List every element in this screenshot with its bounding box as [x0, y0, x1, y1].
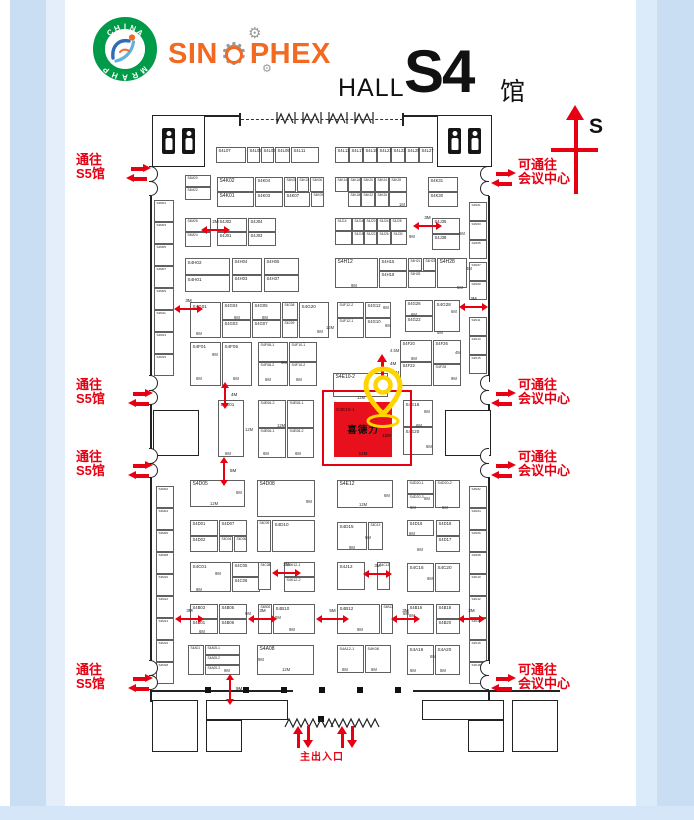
gear-icon: ⚙ [262, 64, 272, 75]
pillar [205, 687, 211, 693]
aisle-arrow-icon: 3M [413, 220, 442, 232]
dimension-label: 4M [455, 350, 461, 355]
booth: S4J04 [248, 218, 276, 232]
booth: S4L25 [405, 147, 419, 163]
booth: S4M22 [185, 187, 211, 200]
booth [335, 231, 352, 245]
booth: S4J26 [377, 231, 391, 245]
booth: S4D17 [436, 536, 460, 552]
dimension-label: 4.5M [390, 348, 399, 353]
booth: S4G28 [434, 300, 460, 332]
booth: S4D01 [190, 520, 218, 536]
booth: S4G26 [405, 300, 433, 316]
booth: S4D06 [234, 536, 247, 552]
dimension-label: 6M [295, 451, 301, 456]
dimension-label: 9M [306, 499, 312, 504]
booth: S4M01 [154, 200, 174, 222]
dimension-label: 6M [410, 505, 416, 510]
booth: S4N05 [469, 240, 487, 259]
booth: S4D02 [190, 536, 218, 552]
booth: S4G08 [282, 302, 298, 320]
aisle-arrow-icon: 2M [201, 224, 230, 236]
dimension-label: 12M [277, 423, 285, 428]
booth: S4J30 [391, 231, 407, 245]
dimension-label: 12M [245, 427, 253, 432]
aisle-arrow-icon: 3M [175, 613, 204, 625]
corridor-label-right: 可通往会议中心 [518, 663, 570, 692]
wall [203, 115, 240, 117]
booth: S4N08 [469, 552, 487, 574]
booth: S4F10-2 [289, 362, 317, 386]
dimension-label: 5M [457, 285, 463, 290]
booth: S4H05 [264, 258, 299, 275]
booth: S4N15 [469, 355, 487, 374]
dimension-label: 6M [263, 451, 269, 456]
booth: S4L19 [363, 147, 377, 163]
pillar [243, 687, 249, 693]
booth: S4A05-1 [205, 645, 240, 655]
dimension-label: 6M [265, 377, 271, 382]
booth: S4H28 [437, 258, 467, 288]
corridor-label-right: 可通往会议中心 [518, 450, 570, 479]
booth: S4K14 [335, 177, 348, 192]
booth: S4J16 [352, 218, 364, 231]
booth: S4H15 [379, 258, 407, 271]
booth: S4H37 [264, 275, 299, 292]
booth: S4D04 [219, 536, 233, 552]
booth: S4J18 [352, 231, 364, 245]
booth: S4H04 [232, 258, 262, 275]
restroom-person-icon [162, 128, 175, 154]
booth: S4H02 [185, 258, 230, 275]
booth: S4L13 [335, 147, 349, 163]
aisle-arrow-icon: 3M [272, 567, 301, 579]
aisle-arrow-icon: 9M [224, 674, 236, 705]
booth: S4J03 [248, 232, 276, 246]
pillar [395, 687, 401, 693]
dimension-label: 6M [451, 309, 457, 314]
dimension-label: 6M [233, 376, 239, 381]
booth: S4L11 [291, 147, 319, 163]
booth: S4M07 [154, 266, 174, 288]
corridor-label-left: 通往S5馆 [76, 450, 105, 479]
booth: S4L05 [247, 147, 260, 163]
booth: S4F01 [190, 342, 221, 386]
dimension-label: 6M [417, 547, 423, 552]
booth: S4N02 [469, 486, 487, 508]
booth: S4B06 [219, 619, 247, 634]
booth: S4N10 [469, 574, 487, 596]
booth: S4M03 [154, 222, 174, 244]
booth: S4D20-2 [435, 480, 460, 508]
highlighted-booth-dim: 12M [359, 451, 368, 456]
double-arrow-icon [128, 674, 155, 694]
dimension-label: 6M [426, 444, 432, 449]
booth: S4L09 [275, 147, 290, 163]
booth: S4K28 [389, 177, 407, 192]
double-arrow-icon [491, 389, 518, 409]
booth: S4C08 [258, 562, 271, 590]
booth: S4D20-1 [407, 480, 434, 494]
dimension-label: 6M [416, 423, 422, 428]
double-arrow-icon [128, 461, 155, 481]
booth: S4G10 [365, 318, 391, 338]
dimension-label: 6M [424, 409, 430, 414]
double-arrow-icon [128, 389, 155, 409]
booth: S4L07 [216, 147, 246, 163]
double-arrow-icon [491, 169, 518, 189]
booth: S4M10 [156, 574, 174, 596]
restroom-person-icon [468, 128, 481, 154]
wall [150, 477, 152, 664]
compass-south-label: S [589, 115, 603, 139]
structure-block [468, 720, 504, 752]
booth: S4M05 [154, 244, 174, 266]
aisle-arrow-icon: 3M [459, 301, 488, 313]
dimension-label: 9M [409, 234, 415, 239]
highlighted-booth-dim: 12M [382, 433, 391, 438]
booth: S4M08 [156, 552, 174, 574]
brand-text-left: SIN [168, 38, 218, 71]
booth: S4N13 [469, 336, 487, 355]
svg-text:A: A [122, 73, 128, 82]
dimension-label: 12M [282, 667, 290, 672]
highlighted-booth-id: S4E10-1 [336, 408, 355, 413]
structure-block [206, 720, 242, 752]
booth: S4A01 [188, 645, 204, 675]
double-arrow-icon [126, 164, 153, 184]
dimension-label: 9M [289, 627, 295, 632]
dimension-label: 6M [459, 231, 465, 236]
dimension-label: 12M [210, 501, 218, 506]
booth: S4D18 [436, 520, 460, 536]
aisle-arrow-icon: 3M [363, 568, 392, 580]
door-icon [479, 166, 489, 196]
door-icon [479, 375, 489, 405]
booth: S4J22 [364, 231, 377, 245]
booth: S4J24 [377, 218, 390, 231]
booth: S4A05-2 [205, 655, 240, 665]
booth: S4K02 [217, 177, 254, 192]
booth: S4K31 [428, 177, 458, 192]
booth: S4K16 [348, 177, 361, 192]
floor-plan: CHINAPHARM SIN ⚙ PHEX ⚙ ⚙ HALL S4 馆 S S4… [0, 0, 694, 820]
door-icon [479, 448, 489, 478]
dimension-label: 6M [411, 356, 417, 361]
restroom-person-icon [182, 128, 195, 154]
svg-text:I: I [124, 23, 126, 32]
aisle-arrow-icon: 5M [316, 613, 349, 625]
dimension-label: 6M [430, 654, 436, 659]
booth: S4K03 [255, 192, 283, 207]
dimension-label: 4M [466, 266, 472, 271]
truss-zigzag-icon [354, 110, 374, 131]
booth: S4K20 [361, 177, 375, 192]
dimension-label: 1M [399, 202, 405, 207]
booth: S4J14 [335, 218, 352, 231]
booth: S4B18 [436, 604, 460, 619]
booth: S4D10 [272, 520, 315, 552]
hall-label-prefix: HALL [338, 74, 405, 103]
booth: S4F08-1 [258, 342, 288, 362]
booth: S4A20 [435, 645, 460, 675]
wall [150, 690, 293, 692]
dimension-label: 9M [196, 587, 202, 592]
booth: S4C06 [232, 577, 260, 592]
pillar [319, 687, 325, 693]
dimension-label: 6M [424, 496, 430, 501]
booth: S4D09 [257, 520, 271, 552]
booth: S4B20 [436, 619, 460, 634]
booth: S4F12-1 [337, 318, 364, 338]
compass-crossbar [551, 148, 598, 152]
booth: S4M11 [154, 310, 174, 332]
wall [150, 196, 152, 382]
dimension-label: 6M [317, 329, 323, 334]
dimension-label: 6M [262, 315, 268, 320]
booth: S4H18 [379, 271, 407, 288]
dimension-label: 9M [215, 571, 221, 576]
booth: S4N07 [469, 262, 487, 281]
dimension-label: 6M [383, 305, 389, 310]
aisle-arrow-icon: 3M [174, 303, 203, 315]
aisle-arrow-icon: 2M [458, 613, 485, 625]
corridor-label-left: 通往S5馆 [76, 663, 105, 692]
booth: S4F08-2 [258, 362, 288, 386]
booth: S4M13 [154, 332, 174, 354]
booth: S4G20 [299, 302, 329, 338]
gear-o-icon: ⚙ [219, 40, 249, 70]
booth: S4L23 [391, 147, 405, 163]
truss-zigzag-icon [328, 110, 348, 131]
booth: S4K12-2 [284, 577, 315, 592]
booth: S4K07 [284, 192, 310, 207]
booth: S4H21 [408, 258, 422, 271]
booth: S4M14 [156, 618, 174, 640]
brand-logo: SIN ⚙ PHEX ⚙ ⚙ [168, 38, 331, 71]
booth: S4F28 [433, 364, 461, 386]
wall-dashed [241, 119, 403, 120]
dimension-label: 9M [351, 283, 357, 288]
booth: S4M16 [156, 640, 174, 662]
dimension-label: 6M [411, 312, 417, 317]
dimension-label: 6M [409, 531, 415, 536]
dimension-label: 6M [236, 490, 242, 495]
booth: S4N11 [469, 317, 487, 336]
dimension-label: 9M [451, 376, 457, 381]
gear-icon: ⚙ [248, 26, 261, 41]
corridor-label-left: 通往S5馆 [76, 153, 105, 182]
entrance-arrow-icon [347, 726, 359, 748]
dimension-label: 6M [234, 315, 240, 320]
booth: S4K01 [217, 192, 254, 207]
booth: S4M02 [156, 486, 174, 508]
truss-zigzag-icon [276, 110, 296, 131]
booth: S4K30 [428, 192, 458, 207]
hall-code: S4 [404, 42, 473, 102]
booth: S4J20 [364, 218, 377, 231]
dimension-label: 9M [212, 352, 218, 357]
dimension-label: 12M [326, 325, 334, 330]
booth: S4K18 [348, 192, 361, 207]
booth: S4G09 [282, 320, 298, 338]
booth: S4B05 [219, 604, 247, 619]
booth: S4K22 [361, 192, 375, 207]
dimension-label: 6M [196, 331, 202, 336]
booth: S4H03 [232, 275, 262, 292]
dimension-label: 6M [427, 576, 433, 581]
booth: S4K26 [375, 192, 389, 207]
booth: S4G22 [405, 316, 433, 332]
booth: S4C20 [435, 563, 460, 592]
structure-block [152, 115, 205, 167]
booth: S4L27 [419, 147, 433, 163]
booth: S4H23 [423, 258, 436, 271]
booth: S4J12 [337, 562, 365, 590]
dimension-label: 5M [442, 505, 448, 510]
dimension-label: 6M [371, 667, 377, 672]
corridor-label-left: 通往S5馆 [76, 378, 105, 407]
dimension-label: 9M [281, 360, 287, 365]
dimension-label: 9M [349, 545, 355, 550]
hall-label-suffix: 馆 [500, 72, 525, 108]
restroom-person-icon [448, 128, 461, 154]
booth: S4M06 [156, 530, 174, 552]
aisle-arrow-icon: 5M [218, 457, 230, 486]
corridor-label-right: 可通往会议中心 [518, 158, 570, 187]
booth: S4G03 [222, 320, 251, 338]
booth: S4J28 [390, 218, 407, 231]
dimension-label: 6M [199, 629, 205, 634]
truss-zigzag-icon [302, 110, 322, 131]
booth: S4J38 [432, 234, 460, 250]
booth: S4L03 [261, 147, 274, 163]
wall [488, 196, 490, 382]
booth: S4D07 [219, 520, 247, 536]
structure-block [152, 700, 198, 752]
booth: S4N01 [469, 202, 487, 221]
corridor-label-right: 可通往会议中心 [518, 378, 570, 407]
main-entrance-label: 主出入口 [300, 748, 344, 763]
structure-block [512, 700, 558, 752]
wall [403, 115, 438, 117]
booth: S4K09 [311, 192, 324, 207]
booth: S4M20 [185, 175, 211, 187]
booth: S4N06 [469, 530, 487, 552]
booth: S4M09 [154, 288, 174, 310]
booth [153, 410, 199, 456]
dimension-label: 6M [385, 323, 391, 328]
aisle-arrow-icon: 4M [219, 382, 231, 409]
location-pin-icon [360, 363, 406, 431]
booth: S4K10 [297, 177, 309, 192]
dimension-label: 6M [365, 535, 371, 540]
double-arrow-icon [491, 674, 518, 694]
structure-block [422, 700, 504, 720]
dimension-label: 5M [437, 330, 443, 335]
booth: S4E08-1 [287, 400, 314, 428]
dimension-label: 6M [225, 451, 231, 456]
booth: S4M15 [154, 354, 174, 376]
dimension-label: 6M [342, 667, 348, 672]
booth: S4N04 [469, 508, 487, 530]
dimension-label: 9M [258, 657, 264, 662]
double-arrow-icon [491, 461, 518, 481]
dimension-label: 6M [196, 376, 202, 381]
aisle-arrow-icon: 3M [248, 613, 277, 625]
booth: S4K08 [365, 645, 391, 673]
booth: S4H25 [408, 271, 436, 288]
booth: S4N16 [469, 640, 487, 662]
booth: S4N03 [469, 221, 487, 240]
dimension-label: 5M [440, 668, 446, 673]
booth: S4M04 [156, 508, 174, 530]
entrance-arrow-icon [303, 726, 315, 748]
booth: S4K04 [255, 177, 283, 192]
pillar [281, 687, 287, 693]
booth: S4G07 [252, 320, 281, 338]
dimension-label: 6M [410, 668, 416, 673]
dimension-label: 9M [357, 627, 363, 632]
structure-block [437, 115, 492, 167]
booth: S4K05 [284, 177, 296, 192]
dimension-label: 9M [224, 668, 230, 673]
wall [488, 477, 490, 664]
china-pharm-logo-icon: CHINAPHARM [92, 16, 158, 82]
booth: S4F12-2 [337, 302, 364, 318]
booth: S4F10-1 [289, 342, 317, 362]
compass-shaft [574, 118, 578, 194]
dimension-label: 12M [359, 502, 367, 507]
booth: S4H01 [185, 275, 230, 292]
booth: S4M12 [156, 596, 174, 618]
booth: S4L17 [349, 147, 363, 163]
dimension-label: 6M [296, 377, 302, 382]
door-icon [479, 660, 489, 690]
wall [150, 404, 152, 453]
dimension-label: 6M [384, 493, 390, 498]
pillar [357, 687, 363, 693]
booth: S4K24 [375, 177, 389, 192]
aisle-arrow-icon: 3M [391, 613, 420, 625]
booth: S4L21 [377, 147, 391, 163]
structure-block [206, 700, 288, 720]
booth: S4K06 [310, 177, 324, 192]
booth: S4C05 [232, 562, 260, 577]
